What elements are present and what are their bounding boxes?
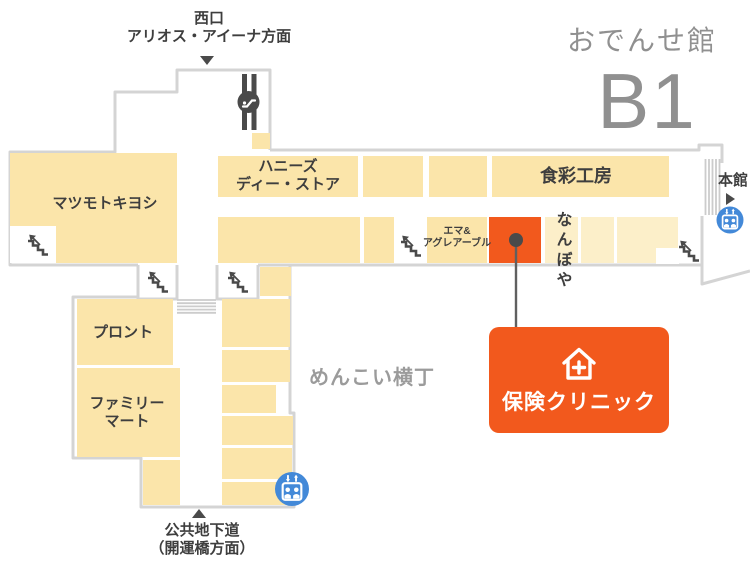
triangle-up-icon — [192, 509, 206, 518]
clinic-badge-label: 保険クリニック — [502, 386, 656, 416]
elevator-icon — [275, 472, 309, 506]
room-block-r3 — [222, 385, 276, 413]
room-block-r1 — [222, 299, 290, 347]
store-block-lower-2 — [364, 217, 394, 263]
triangle-down-icon — [200, 56, 214, 65]
store-block-upper-2 — [363, 156, 423, 197]
walkway-steps-hatch — [177, 300, 216, 313]
store-label-family-mart: ファミリー マート — [89, 395, 164, 432]
main-building-label: 本館 — [718, 172, 748, 190]
building-title: おでんせ館 — [567, 24, 717, 58]
room-block-r0 — [260, 267, 291, 296]
zone-label-menkoi-yokocho: めんこい横丁 — [309, 366, 435, 390]
entrance-strip-block — [252, 133, 270, 149]
notch-cutout-east — [656, 248, 679, 264]
stairs-icon — [401, 236, 421, 256]
store-label-honeys: ハニーズ ディー・ストア — [236, 158, 340, 195]
floor-label: B1 — [597, 62, 696, 140]
room-block-r5 — [222, 448, 292, 479]
floor-map: 西口 アリオス・アイーナ方面 おでんせ館 B1 マツモトキヨシ ハニーズ ディー… — [0, 0, 750, 564]
store-block-family-mart-annex — [143, 460, 180, 505]
triangle-right-icon — [726, 193, 735, 205]
store-label-shokusai-kobo: 食彩工房 — [540, 166, 612, 188]
stairs-icon — [228, 272, 248, 292]
store-label-pronto: プロント — [93, 324, 153, 342]
store-label-emma-agreable: エマ& アグレアーブル — [423, 226, 491, 250]
house-plus-icon — [559, 344, 599, 384]
store-block-upper-3 — [429, 156, 487, 197]
store-label-matsumoto-kiyoshi: マツモトキヨシ — [52, 195, 157, 213]
elevator-icon — [717, 207, 744, 234]
room-block-pale-2 — [581, 217, 614, 263]
room-block-r2 — [222, 350, 290, 382]
underground-exit-label: 公共地下道 （開運橋方面） — [149, 522, 254, 559]
store-label-nanboya: なんぼや — [552, 211, 572, 291]
escalator-icon — [238, 74, 260, 130]
clinic-highlight-badge: 保険クリニック — [489, 327, 669, 433]
store-block-lower-1 — [218, 217, 360, 263]
stairs-icon — [679, 241, 699, 261]
stairs-icon — [148, 272, 168, 292]
room-block-r4 — [222, 416, 293, 445]
west-exit-label: 西口 アリオス・アイーナ方面 — [127, 10, 291, 47]
